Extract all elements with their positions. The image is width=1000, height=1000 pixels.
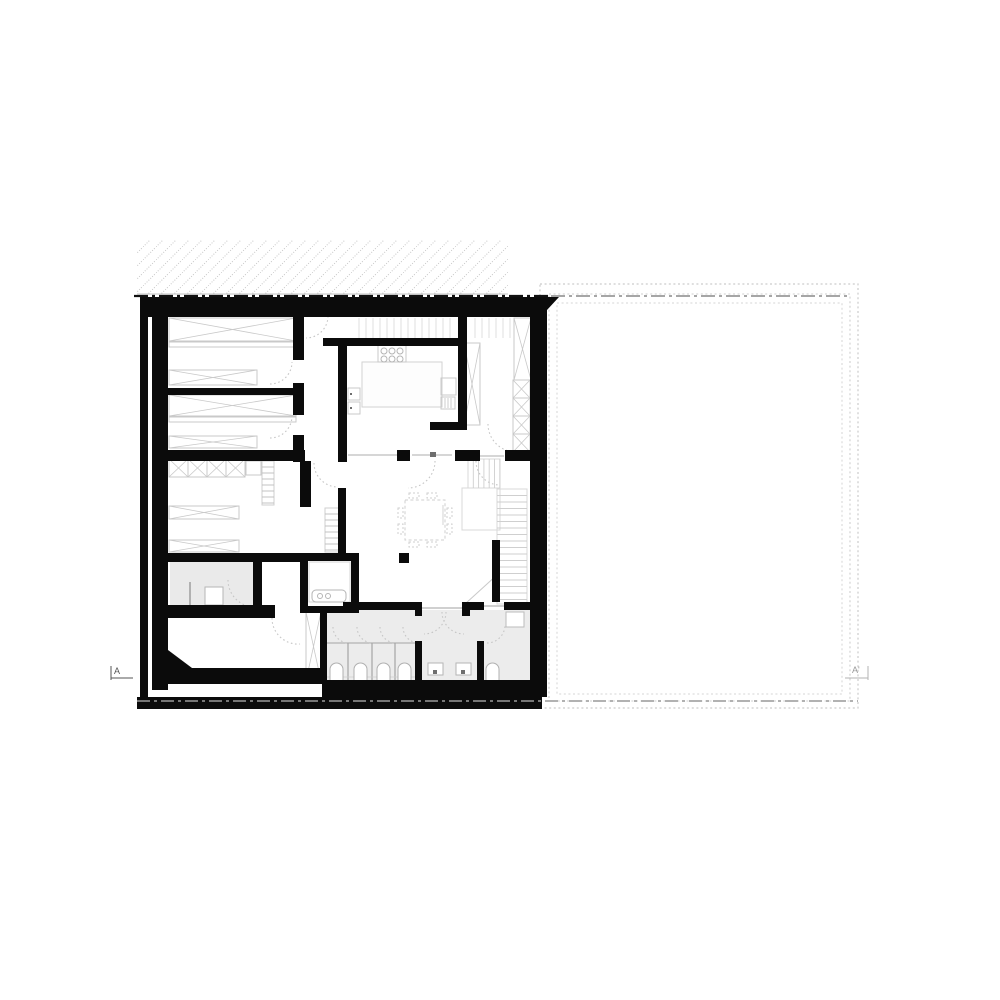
plan-layers [111,240,868,709]
wall-bathroom-rear [152,605,275,618]
wall-entry-nook [430,422,467,430]
stair-landing [462,488,500,530]
closet-box [246,461,261,475]
burner-5 [389,356,395,362]
wall-living-block-1 [397,450,410,461]
burner-2 [389,348,395,354]
wall-kitchen-top [323,338,462,346]
wall-bottom-right [322,680,547,697]
terrace-outline-outer [540,284,858,708]
wall-stairwell [492,540,500,602]
kitchen-island [362,362,442,407]
wall-left [152,303,168,690]
dining-table [405,500,445,540]
shower-tray [205,587,223,605]
wall-bottom-left [152,668,324,684]
wall-left-outer-leaf [140,303,148,700]
door-arc-hall-top [306,316,328,338]
wall-bedrooms-a [293,317,304,360]
stall-niche-2 [354,663,367,681]
wall-suite-top-a [343,602,415,610]
closet-ladder-frame [262,461,274,505]
mid-stair-frame [325,508,340,552]
wall-hall-lower-a [300,461,311,507]
chair-right-2 [447,524,452,534]
section-marker-a-label: A [114,667,120,676]
door-arc-bedroom-1 [270,362,292,384]
door-arc-bedroom-2 [270,416,292,438]
stall-niche-1 [330,663,343,681]
stall-niche-3 [377,663,390,681]
wall-right [530,309,547,690]
fireplace-column [399,553,409,563]
roof-hatch-band [137,240,508,294]
chair-left-2 [398,524,403,534]
module-wall-top [300,553,359,561]
toilet-2-drain [461,670,465,674]
toilet-1-drain [433,670,437,674]
chair-bottom-1 [409,542,419,547]
wall-suite-top-c [504,602,537,610]
wall-suite-partition-2 [477,641,484,682]
wall-between-bedrooms [168,388,293,395]
wall-bottom-outer-band [137,697,542,709]
terrace-outline-mid [549,294,850,701]
burner-6 [397,356,403,362]
wall-suite-top-b [470,602,484,610]
chair-top-2 [427,493,437,498]
wall-kitchen-left-lower [338,488,346,553]
chair-left-1 [398,508,403,518]
wall-bedroom2-closet [168,450,305,461]
appliance-1-knob [350,393,352,395]
bed-2-foot [169,417,296,422]
wall-closet-bathroom [168,553,308,562]
terrace-outline-inner [557,303,842,694]
wall-kitchen-left-upper [338,346,347,462]
bed-1-foot [169,342,296,347]
burner-3 [397,348,403,354]
wall-bedrooms-b [293,383,304,415]
chair-right-1 [447,508,452,518]
stall-niche-5 [486,663,499,681]
stall-niche-4 [398,663,411,681]
wall-suite-left [320,610,327,682]
door-arc-entry-living [488,424,516,452]
fridge [441,378,456,395]
chair-bottom-2 [427,542,437,547]
suite-corner-basin [506,612,524,627]
appliance-2-knob [350,407,352,409]
floor-plan-svg [0,0,1000,1000]
appliance-1 [348,388,360,400]
wall-entry-divider [458,317,467,425]
burner-1 [381,348,387,354]
wall-living-block-3 [505,450,530,461]
door-arc-stair-hall [476,461,500,485]
wall-corner-chamfer [168,650,192,668]
wall-suite-jamb-1 [415,602,422,616]
door-arc-living-1 [408,461,435,488]
floor-plan-canvas: A A' [0,0,1000,1000]
wall-hall-lower-b [300,553,308,613]
wall-living-block-2 [455,450,480,461]
wall-bathroom-right [253,555,262,605]
burner-4 [381,356,387,362]
wall-top [140,297,547,317]
appliance-2 [348,402,360,414]
living-post [430,452,436,457]
section-marker-a-prime-label: A' [852,666,860,675]
door-arc-rear-room [272,618,300,644]
wall-suite-jamb-2 [462,602,470,616]
wall-suite-partition-1 [415,641,422,682]
chair-top-1 [409,493,419,498]
door-arc-kitchen-hall [314,463,338,487]
